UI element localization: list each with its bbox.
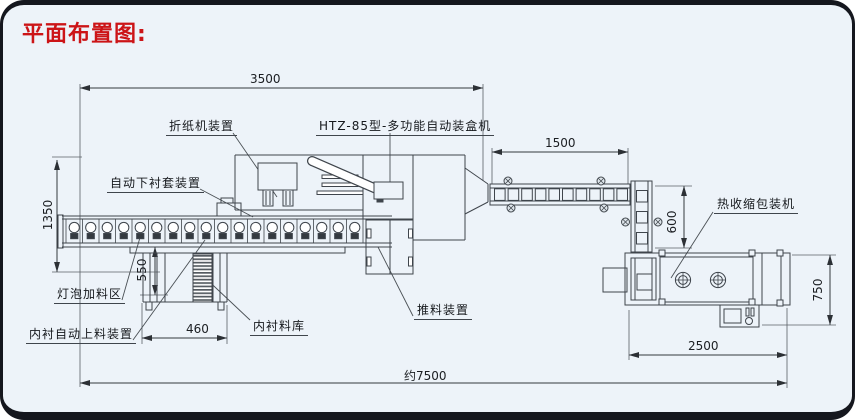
dim-7500: 约7500: [404, 367, 447, 384]
label-pusher: 推料装置: [414, 301, 472, 320]
label-liner-feeder: 内衬自动上料装置: [26, 325, 136, 344]
dim-550: 550: [135, 240, 149, 300]
dim-460: 460: [186, 322, 209, 336]
dim-1350: 1350: [41, 185, 55, 245]
bulb-conveyor: [58, 198, 392, 253]
liner-storage-elevator: [143, 253, 227, 310]
label-cartoner: HTZ-85型-多功能自动装盒机: [316, 117, 494, 136]
paper-folder-device: [258, 163, 297, 206]
cartoner-motor-box: [374, 182, 403, 202]
dim-2500: 2500: [688, 339, 719, 353]
transfer-belt-1500: [490, 177, 630, 212]
label-liner-sleeve: 自动下衬套装置: [107, 174, 204, 193]
shrink-wrapper-machine: [603, 250, 790, 327]
label-shrink-wrapper: 热收缩包装机: [714, 195, 798, 214]
diagram-canvas: 平面布置图:: [0, 0, 855, 420]
label-paper-folder: 折纸机装置: [166, 117, 237, 136]
label-bulb-feed: 灯泡加料区: [54, 285, 125, 304]
dim-750: 750: [811, 260, 825, 320]
label-liner-storage: 内衬料库: [250, 317, 308, 336]
dim-1500: 1500: [545, 136, 576, 150]
dim-3500: 3500: [250, 72, 281, 86]
dim-600: 600: [665, 192, 679, 252]
